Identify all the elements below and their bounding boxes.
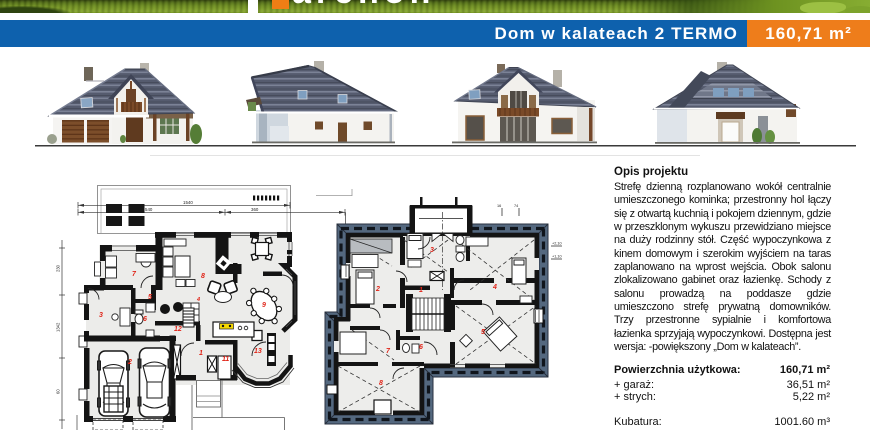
svg-text:11: 11 (222, 356, 229, 363)
svg-text:5: 5 (481, 329, 485, 336)
svg-text:3: 3 (99, 312, 103, 319)
svg-text:4: 4 (492, 284, 497, 291)
svg-text:230: 230 (56, 264, 61, 272)
svg-text:1342: 1342 (56, 322, 61, 332)
svg-text:2: 2 (127, 359, 132, 366)
svg-text:2: 2 (375, 286, 380, 293)
svg-text:3: 3 (430, 247, 434, 254)
svg-text:13: 13 (254, 348, 262, 355)
svg-text:+1,10: +1,10 (552, 255, 562, 259)
svg-text:1: 1 (419, 287, 423, 294)
svg-text:6: 6 (419, 344, 423, 351)
svg-text:60: 60 (56, 389, 61, 394)
svg-text:16: 16 (497, 204, 501, 208)
svg-text:+2,10: +2,10 (552, 242, 562, 246)
svg-text:74: 74 (514, 204, 518, 208)
svg-text:5: 5 (148, 294, 152, 301)
svg-text:9: 9 (262, 302, 266, 309)
svg-text:8: 8 (201, 273, 205, 280)
svg-text:540: 540 (145, 207, 153, 212)
svg-text:8: 8 (379, 380, 383, 387)
svg-text:1540: 1540 (183, 200, 193, 205)
svg-text:4: 4 (196, 297, 200, 303)
svg-text:360: 360 (251, 207, 259, 212)
svg-text:6: 6 (143, 316, 147, 323)
svg-text:1: 1 (199, 350, 203, 357)
svg-text:12: 12 (174, 326, 182, 333)
